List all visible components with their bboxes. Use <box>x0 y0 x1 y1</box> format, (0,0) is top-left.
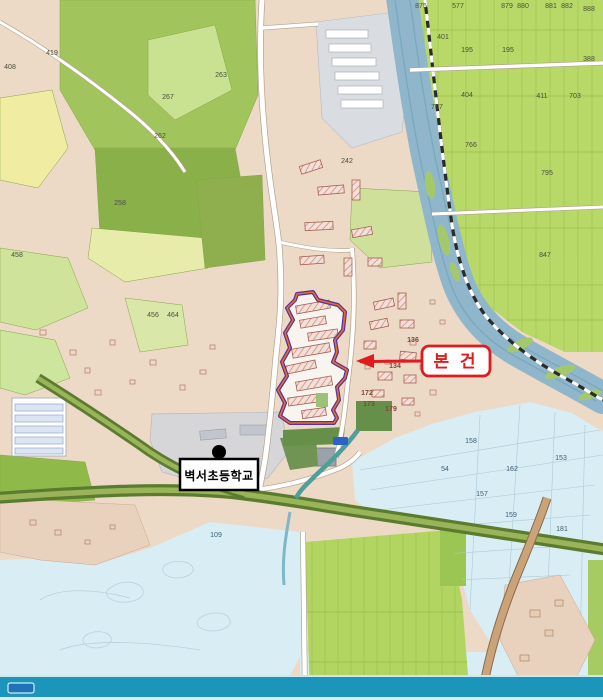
parcel-label: 158 <box>465 438 477 445</box>
parcel-label: 388 <box>583 56 595 63</box>
parcel-label: 195 <box>461 47 473 54</box>
parcel-label: 159 <box>505 512 517 519</box>
subject-label-text: 본 건 <box>433 352 478 371</box>
parcel-label: 456 <box>147 312 159 319</box>
parcel-label: 408 <box>4 64 16 71</box>
parcel-label: 181 <box>556 526 568 533</box>
parcel-label: 109 <box>210 532 222 539</box>
parcel-label: 888 <box>583 6 595 13</box>
parcel-label: 458 <box>11 252 23 259</box>
parcel-label: 401 <box>437 34 449 41</box>
stream-name-badge <box>8 683 34 693</box>
cadastral-map: 2672622632582424194084564644588755778798… <box>0 0 603 700</box>
parcel-label: 879 <box>501 3 513 10</box>
parcel-label: 173 <box>363 401 375 408</box>
parcel-label: 404 <box>461 92 473 99</box>
parcel-label: 267 <box>162 94 174 101</box>
subject-parcel[interactable] <box>278 292 347 423</box>
parcel-label: 577 <box>452 3 464 10</box>
parcel-label: 54 <box>441 466 449 473</box>
parcel-label: 134 <box>389 363 401 370</box>
parcel-label: 179 <box>385 406 397 413</box>
parcel-label: 766 <box>465 142 477 149</box>
parcel-label: 847 <box>539 252 551 259</box>
parcel-label: 172 <box>361 390 373 397</box>
parcel-label: 195 <box>502 47 514 54</box>
parcel-label: 882 <box>561 3 573 10</box>
parcel-label: 875 <box>415 3 427 10</box>
parcel-label: 157 <box>476 491 488 498</box>
school-label-text: 벽서초등학교 <box>184 468 253 483</box>
school-point-marker <box>212 445 226 459</box>
route-badge <box>333 437 348 445</box>
parcel-label: 162 <box>506 466 518 473</box>
parcel-label: 242 <box>341 158 353 165</box>
parcel-label: 136 <box>407 337 419 344</box>
parcel-label: 795 <box>541 170 553 177</box>
parcel-label: 419 <box>46 50 58 57</box>
inner-green-patch <box>316 393 328 407</box>
map-canvas[interactable]: 2672622632582424194084564644588755778798… <box>0 0 603 700</box>
bottom-stream <box>0 675 603 700</box>
parcel-label: 881 <box>545 3 557 10</box>
parcel-label: 703 <box>569 93 581 100</box>
parcel-label: 880 <box>517 3 529 10</box>
parcel-label: 464 <box>167 312 179 319</box>
parcel-label: 263 <box>215 72 227 79</box>
parcel-label: 262 <box>154 133 166 140</box>
parcel-label: 153 <box>555 455 567 462</box>
parcel-label: 757 <box>431 104 443 111</box>
parcel-label: 258 <box>114 200 126 207</box>
parcel-label: 411 <box>536 93 547 100</box>
